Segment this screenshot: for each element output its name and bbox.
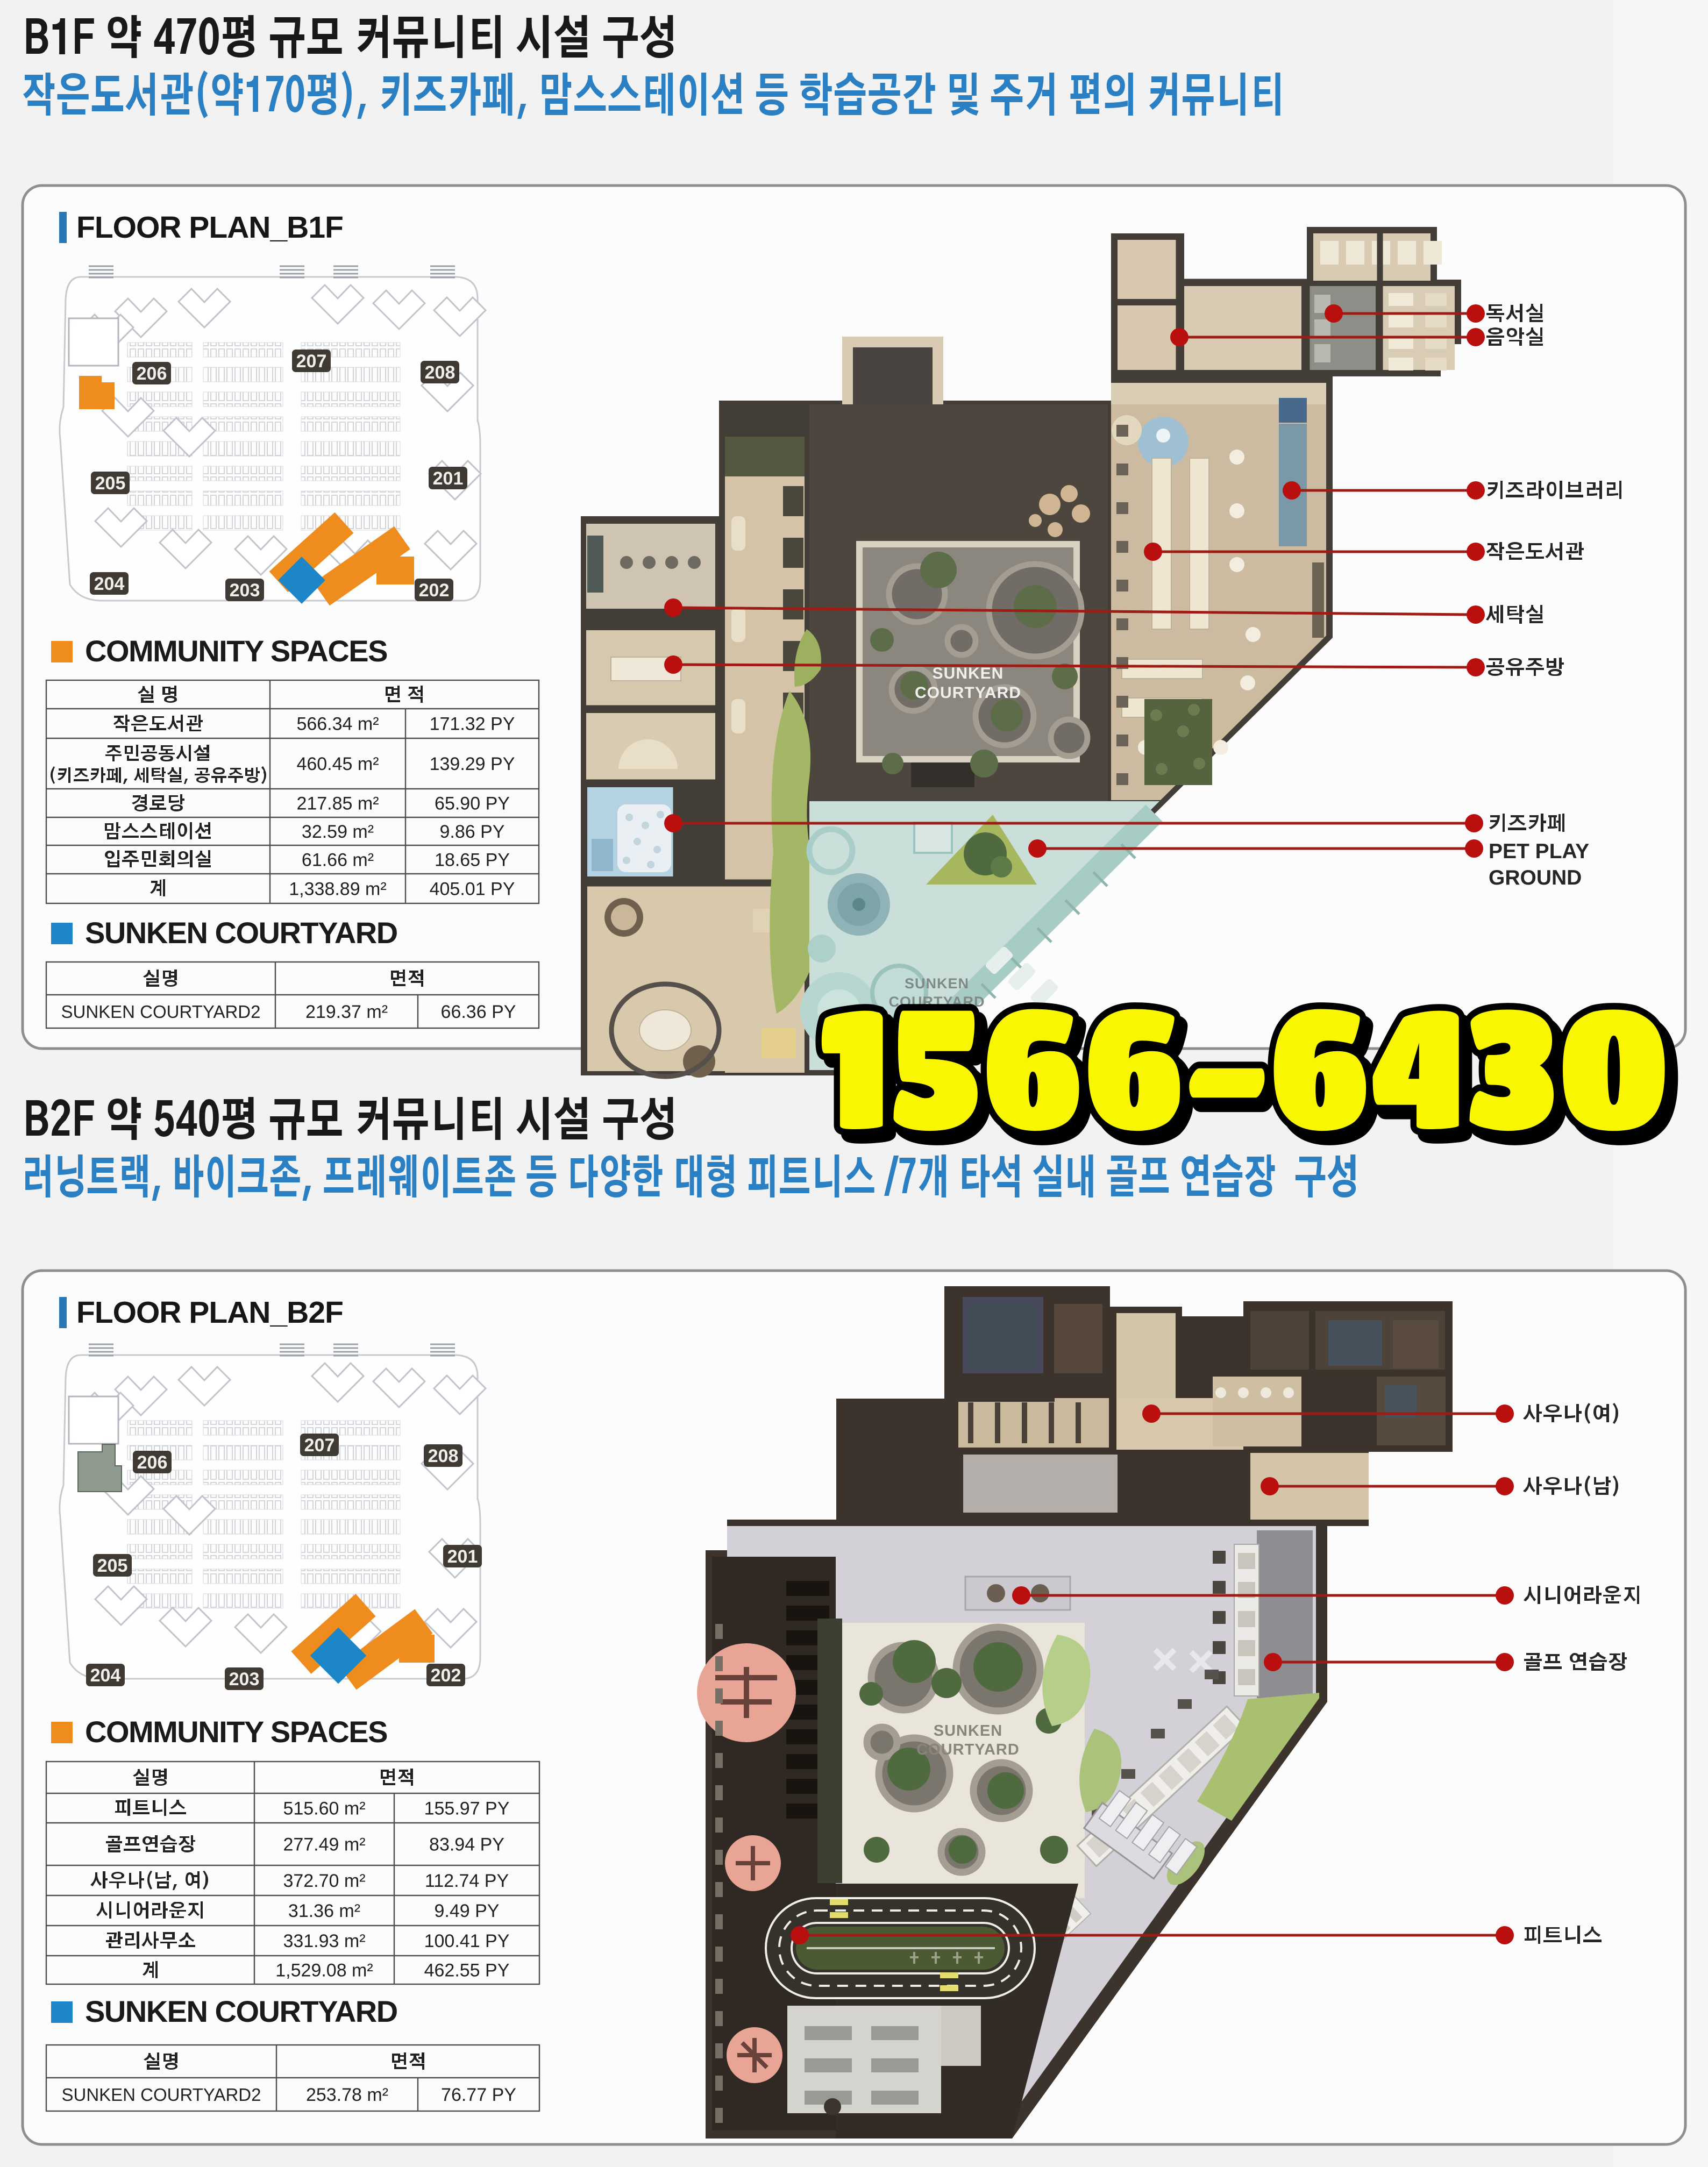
svg-text:204: 204 xyxy=(94,574,125,594)
svg-text:171.32 PY: 171.32 PY xyxy=(430,714,515,735)
svg-text:206: 206 xyxy=(137,1452,168,1473)
svg-text:201: 201 xyxy=(433,468,464,489)
svg-text:9.49 PY: 9.49 PY xyxy=(435,1901,500,1921)
svg-text:205: 205 xyxy=(95,473,126,494)
svg-text:SUNKEN: SUNKEN xyxy=(905,975,969,992)
svg-text:112.74 PY: 112.74 PY xyxy=(425,1871,509,1891)
svg-text:139.29 PY: 139.29 PY xyxy=(430,754,515,774)
svg-text:31.36 m²: 31.36 m² xyxy=(288,1901,360,1921)
svg-text:405.01 PY: 405.01 PY xyxy=(430,879,515,900)
svg-text:460.45 m²: 460.45 m² xyxy=(296,754,379,774)
svg-text:FLOOR PLAN_B1F: FLOOR PLAN_B1F xyxy=(76,210,343,245)
svg-text:201: 201 xyxy=(447,1546,478,1567)
svg-text:208: 208 xyxy=(425,362,456,383)
svg-text:515.60 m²: 515.60 m² xyxy=(283,1799,365,1819)
svg-text:SUNKEN COURTYARD: SUNKEN COURTYARD xyxy=(85,1994,397,2028)
svg-text:FLOOR PLAN_B2F: FLOOR PLAN_B2F xyxy=(76,1295,343,1330)
svg-text:100.41 PY: 100.41 PY xyxy=(424,1931,510,1951)
svg-text:253.78 m²: 253.78 m² xyxy=(306,2085,388,2105)
svg-text:207: 207 xyxy=(296,351,327,372)
svg-text:277.49 m²: 277.49 m² xyxy=(283,1835,365,1855)
svg-text:76.77 PY: 76.77 PY xyxy=(441,2085,516,2105)
svg-text:SUNKEN: SUNKEN xyxy=(934,1722,1002,1740)
svg-text:18.65 PY: 18.65 PY xyxy=(435,850,510,871)
svg-text:9.86 PY: 9.86 PY xyxy=(440,822,505,842)
svg-text:155.97 PY: 155.97 PY xyxy=(424,1799,510,1819)
svg-text:SUNKEN COURTYARD2: SUNKEN COURTYARD2 xyxy=(61,2085,261,2105)
svg-text:207: 207 xyxy=(304,1435,335,1456)
svg-text:331.93 m²: 331.93 m² xyxy=(283,1931,365,1951)
svg-text:204: 204 xyxy=(90,1665,121,1686)
svg-text:65.90 PY: 65.90 PY xyxy=(435,794,510,814)
svg-text:208: 208 xyxy=(428,1446,459,1466)
svg-text:202: 202 xyxy=(419,580,450,601)
svg-text:202: 202 xyxy=(431,1665,461,1686)
svg-text:566.34 m²: 566.34 m² xyxy=(296,714,379,735)
svg-text:32.59 m²: 32.59 m² xyxy=(302,822,374,842)
svg-text:COMMUNITY SPACES: COMMUNITY SPACES xyxy=(85,634,387,668)
svg-text:PET PLAY: PET PLAY xyxy=(1489,840,1589,863)
svg-text:61.66 m²: 61.66 m² xyxy=(302,850,374,871)
svg-text:206: 206 xyxy=(137,363,167,384)
svg-text:SUNKEN: SUNKEN xyxy=(933,665,1004,682)
svg-text:205: 205 xyxy=(97,1556,128,1576)
svg-text:1,529.08 m²: 1,529.08 m² xyxy=(275,1961,373,1981)
svg-text:SUNKEN COURTYARD: SUNKEN COURTYARD xyxy=(85,916,397,950)
svg-text:203: 203 xyxy=(230,580,260,601)
svg-text:COURTYARD: COURTYARD xyxy=(915,684,1021,702)
svg-text:GROUND: GROUND xyxy=(1489,866,1582,889)
svg-text:83.94 PY: 83.94 PY xyxy=(429,1835,504,1855)
svg-text:1,338.89 m²: 1,338.89 m² xyxy=(289,879,386,900)
svg-text:SUNKEN COURTYARD2: SUNKEN COURTYARD2 xyxy=(61,1002,260,1022)
svg-text:COURTYARD: COURTYARD xyxy=(916,1741,1020,1758)
svg-text:462.55 PY: 462.55 PY xyxy=(424,1961,510,1981)
svg-text:203: 203 xyxy=(229,1669,260,1690)
svg-text:66.36 PY: 66.36 PY xyxy=(441,1002,516,1022)
svg-text:219.37 m²: 219.37 m² xyxy=(305,1002,388,1022)
svg-text:COMMUNITY SPACES: COMMUNITY SPACES xyxy=(85,1715,387,1749)
svg-text:217.85 m²: 217.85 m² xyxy=(296,794,379,814)
svg-text:372.70 m²: 372.70 m² xyxy=(283,1871,365,1891)
